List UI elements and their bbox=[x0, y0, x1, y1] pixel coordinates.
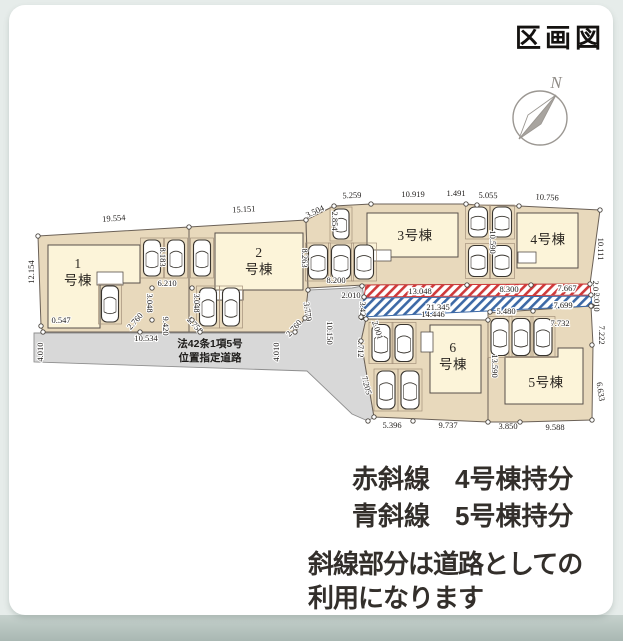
dim-label: 0.547 bbox=[51, 315, 70, 325]
north-label: N bbox=[549, 73, 563, 92]
dim-label: 10.590 bbox=[488, 230, 498, 253]
house-1-label: 号棟 bbox=[64, 273, 92, 288]
survey-point bbox=[590, 418, 594, 422]
survey-point bbox=[486, 420, 490, 424]
car-icon bbox=[398, 369, 422, 411]
blue-hatch-strip-dim-label: 21.345 bbox=[426, 302, 449, 312]
dim-label: 10.756 bbox=[535, 191, 559, 202]
survey-point bbox=[332, 204, 336, 208]
car-icon bbox=[466, 205, 491, 239]
car-icon bbox=[352, 243, 377, 281]
compass-needle bbox=[519, 95, 556, 139]
survey-point bbox=[362, 295, 366, 299]
porch bbox=[421, 332, 433, 352]
dim-label: 5.055 bbox=[478, 190, 497, 200]
usage-note: 斜線部分は道路としての 利用になります bbox=[308, 547, 582, 615]
dim-label: 8.263 bbox=[300, 248, 310, 267]
blue-hatch-strip-dim-label: 5.480 bbox=[496, 306, 515, 316]
survey-point bbox=[464, 202, 468, 206]
road-name-label: 位置指定道路 bbox=[179, 351, 242, 364]
dim-label: 9.737 bbox=[438, 420, 457, 430]
dim-label: 1.491 bbox=[446, 188, 465, 198]
legend-blue-label: 青斜線 bbox=[352, 498, 430, 535]
dim-label: 7.222 bbox=[597, 325, 607, 344]
dim-label: 6.210 bbox=[157, 278, 176, 288]
red-hatch-strip-dim-label: 7.667 bbox=[557, 283, 576, 293]
dim-label: 9.420 bbox=[161, 316, 171, 335]
dim-label: 4.010 bbox=[271, 342, 281, 361]
legend-red-row: 赤斜線 4号棟持分 bbox=[352, 461, 573, 498]
legend-red-value: 4号棟持分 bbox=[455, 461, 573, 498]
dim-label: 4.010 bbox=[35, 342, 45, 361]
survey-point bbox=[518, 420, 522, 424]
dim-label: 3.048 bbox=[145, 293, 155, 312]
legend-blue-value: 5号棟持分 bbox=[455, 498, 573, 535]
car-icon bbox=[374, 369, 398, 411]
house-6-label: 6 bbox=[449, 340, 456, 355]
red-hatch-strip-dim-label: 13.048 bbox=[408, 286, 431, 296]
survey-point bbox=[588, 282, 592, 286]
survey-point bbox=[304, 218, 308, 222]
survey-point bbox=[372, 415, 376, 419]
survey-point bbox=[529, 283, 533, 287]
dim-label: 2.010 bbox=[341, 290, 360, 300]
legend-blue-row: 青斜線 5号棟持分 bbox=[352, 498, 573, 535]
car-icon bbox=[466, 244, 491, 279]
survey-point bbox=[475, 203, 479, 207]
page-title: 区画図 bbox=[515, 18, 605, 55]
survey-point bbox=[590, 343, 594, 347]
dim-label: 5.396 bbox=[382, 420, 401, 430]
house-4-label: 4号棟 bbox=[530, 232, 565, 247]
survey-point bbox=[150, 318, 154, 322]
survey-point bbox=[589, 293, 593, 297]
survey-point bbox=[187, 225, 191, 229]
survey-point bbox=[138, 330, 142, 334]
dim-label: 15.151 bbox=[232, 203, 256, 214]
survey-point bbox=[517, 204, 521, 208]
blue-hatch-strip-dim-label: 7.699 bbox=[553, 300, 572, 310]
dim-label: 13.590 bbox=[490, 354, 500, 377]
dim-label: 10.534 bbox=[134, 333, 158, 343]
survey-point bbox=[190, 286, 194, 290]
survey-point bbox=[39, 324, 43, 328]
dim-label: 5.259 bbox=[342, 190, 361, 201]
house-6-label: 号棟 bbox=[439, 357, 467, 372]
car-icon bbox=[99, 284, 122, 324]
dim-label: 3.048 bbox=[192, 293, 202, 312]
car-icon bbox=[509, 317, 533, 358]
house-2-label: 号棟 bbox=[245, 262, 273, 277]
survey-point bbox=[364, 317, 368, 321]
note-line-1: 斜線部分は道路としての bbox=[308, 547, 582, 581]
dim-label: 7.732 bbox=[550, 318, 569, 328]
survey-point bbox=[150, 286, 154, 290]
survey-point bbox=[41, 330, 45, 334]
compass: N bbox=[513, 73, 567, 145]
car-icon bbox=[392, 323, 416, 364]
survey-point bbox=[486, 318, 490, 322]
porch bbox=[97, 272, 123, 285]
dim-label: 9.588 bbox=[545, 422, 564, 432]
dim-label: 19.554 bbox=[102, 212, 127, 224]
plot-diagram: 1号棟2号棟3号棟4号棟5号棟6号棟19.55415.1513.5045.259… bbox=[0, 0, 623, 641]
car-icon bbox=[191, 238, 214, 278]
survey-point bbox=[293, 330, 297, 334]
dim-label: 6.633 bbox=[595, 381, 608, 401]
dim-label: 3.850 bbox=[498, 421, 517, 431]
survey-point bbox=[589, 304, 593, 308]
car-icon bbox=[488, 317, 512, 358]
survey-point bbox=[360, 284, 364, 288]
survey-point bbox=[411, 419, 415, 423]
house-1-label: 1 bbox=[74, 256, 81, 271]
survey-point bbox=[359, 315, 363, 319]
house-2-label: 2 bbox=[255, 245, 262, 260]
car-icon bbox=[220, 286, 243, 328]
survey-point bbox=[531, 309, 535, 313]
survey-point bbox=[198, 330, 202, 334]
road-name-label: 法42条1項5号 bbox=[177, 337, 242, 350]
dim-label: 8.183 bbox=[158, 247, 168, 266]
dim-label: 12.154 bbox=[26, 260, 36, 284]
dim-label: 2.854 bbox=[330, 211, 340, 231]
dim-label: 10.150 bbox=[325, 321, 335, 344]
legend-red-label: 赤斜線 bbox=[352, 461, 430, 498]
survey-point bbox=[366, 419, 370, 423]
survey-point bbox=[488, 310, 492, 314]
red-hatch-strip-dim-label: 8.300 bbox=[499, 284, 518, 294]
house-3-label: 3号棟 bbox=[397, 228, 432, 243]
legend: 赤斜線 4号棟持分 青斜線 5号棟持分 bbox=[352, 461, 573, 535]
page-background: 1号棟2号棟3号棟4号棟5号棟6号棟19.55415.1513.5045.259… bbox=[0, 0, 623, 641]
dim-label: 10.919 bbox=[401, 189, 424, 199]
survey-point bbox=[465, 283, 469, 287]
note-line-2: 利用になります bbox=[308, 581, 582, 615]
survey-point bbox=[359, 339, 363, 343]
survey-point bbox=[36, 234, 40, 238]
survey-point bbox=[303, 316, 307, 320]
dim-label: 10.111 bbox=[596, 238, 606, 261]
survey-point bbox=[190, 318, 194, 322]
survey-point bbox=[598, 208, 602, 212]
survey-point bbox=[369, 202, 373, 206]
porch bbox=[518, 252, 536, 263]
survey-point bbox=[306, 288, 310, 292]
dim-label: 8.200 bbox=[326, 275, 345, 285]
house-5-label: 5号棟 bbox=[528, 375, 563, 390]
